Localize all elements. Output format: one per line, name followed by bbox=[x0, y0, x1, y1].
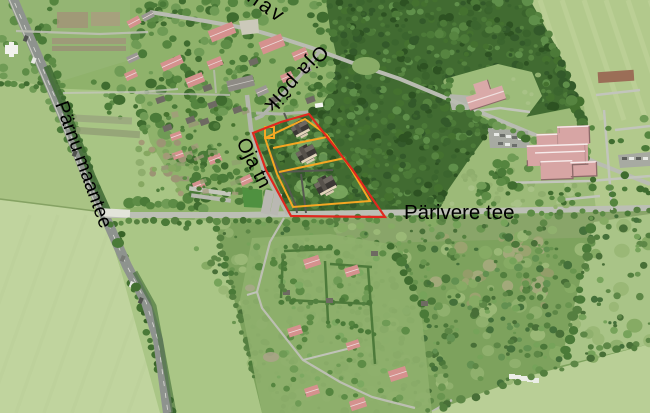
svg-text:Pärivere tee: Pärivere tee bbox=[404, 201, 515, 224]
